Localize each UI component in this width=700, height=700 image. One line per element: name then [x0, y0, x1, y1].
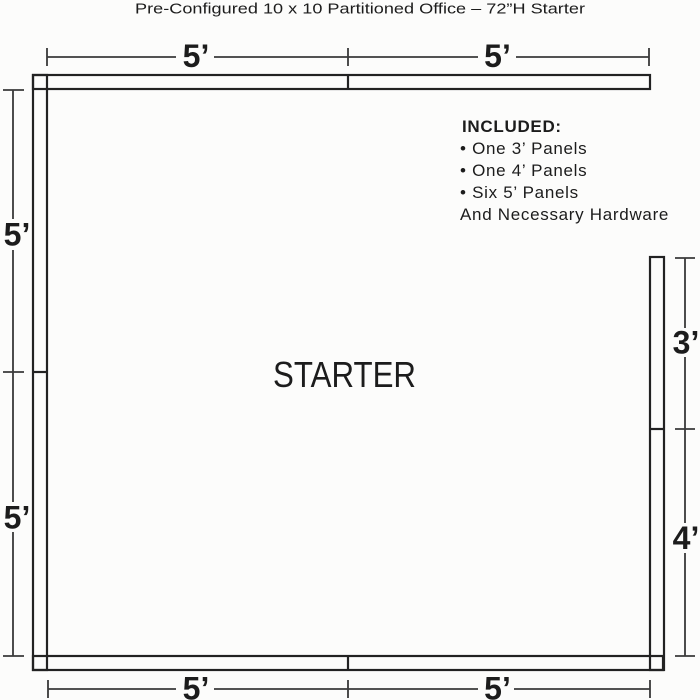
- svg-text:• Six 5’ Panels: • Six 5’ Panels: [460, 183, 579, 202]
- svg-text:And Necessary Hardware: And Necessary Hardware: [460, 205, 669, 224]
- svg-text:• One 4’ Panels: • One 4’ Panels: [460, 161, 587, 180]
- svg-text:4’: 4’: [673, 520, 700, 556]
- svg-text:5’: 5’: [484, 38, 511, 74]
- svg-text:INCLUDED:: INCLUDED:: [462, 117, 562, 136]
- svg-text:5’: 5’: [4, 217, 31, 253]
- svg-text:• One 3’ Panels: • One 3’ Panels: [460, 139, 587, 158]
- svg-text:5’: 5’: [183, 671, 210, 700]
- svg-text:STARTER: STARTER: [273, 354, 416, 395]
- svg-text:5’: 5’: [183, 38, 210, 74]
- svg-text:5’: 5’: [4, 500, 31, 536]
- svg-text:Pre-Configured 10 x 10 Partiti: Pre-Configured 10 x 10 Partitioned Offic…: [135, 2, 585, 18]
- svg-text:5’: 5’: [484, 671, 511, 700]
- svg-text:3’: 3’: [673, 325, 700, 361]
